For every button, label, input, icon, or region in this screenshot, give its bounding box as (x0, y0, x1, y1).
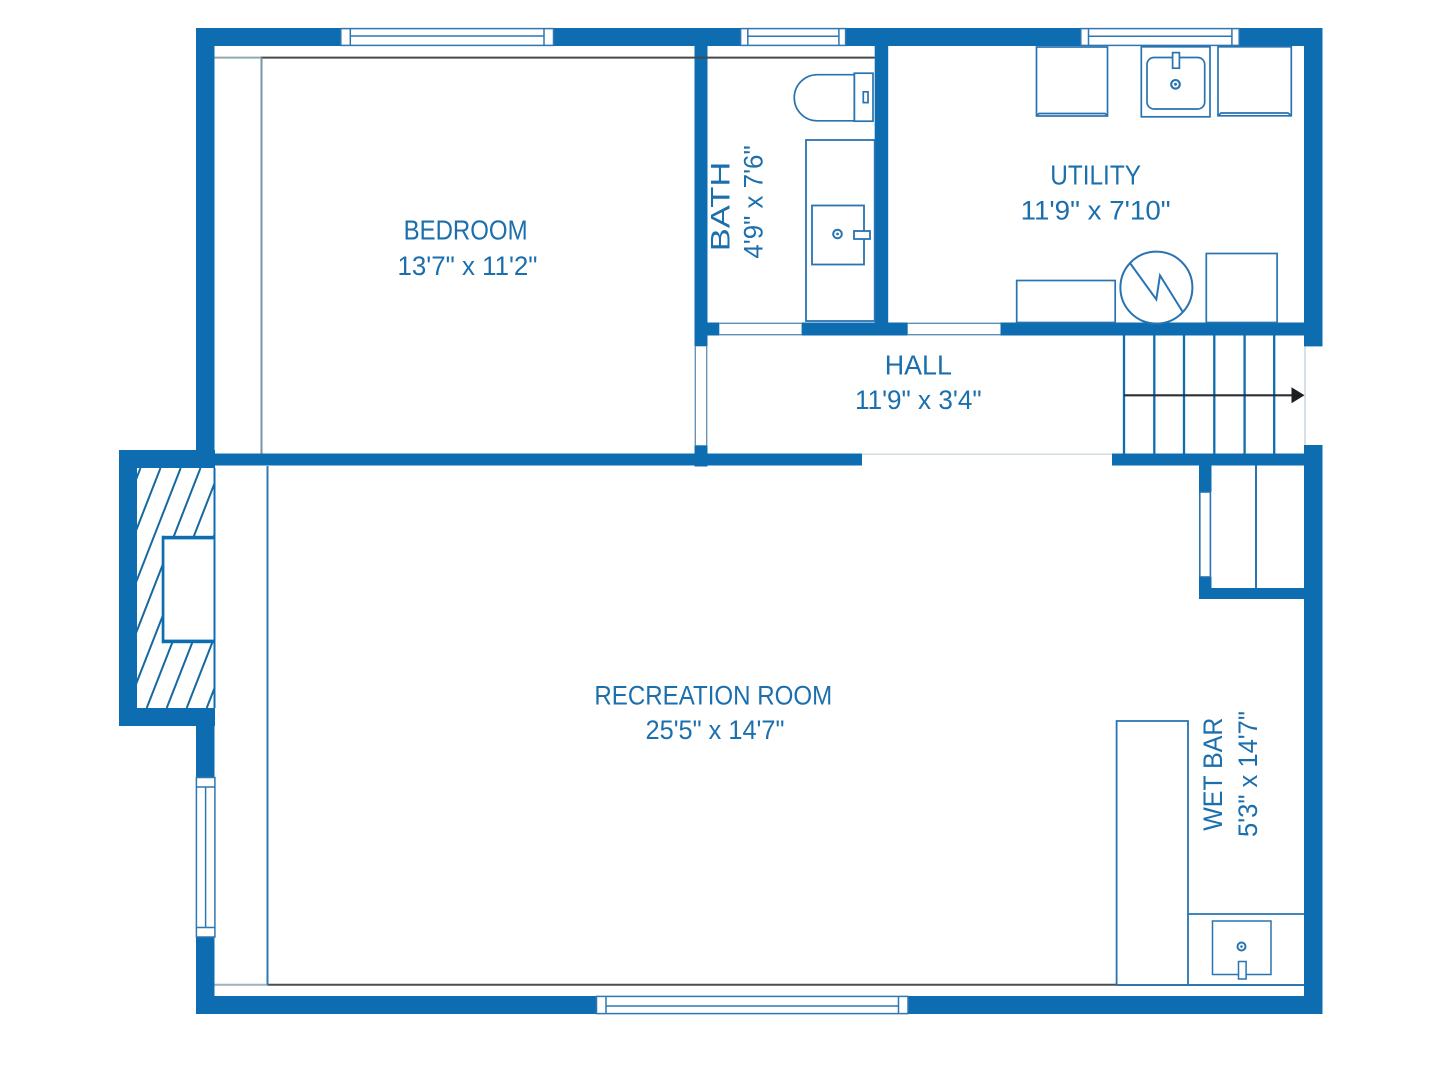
svg-text:BATH: BATH (706, 162, 736, 252)
svg-text:RECREATION ROOM: RECREATION ROOM (594, 680, 832, 710)
svg-text:25'5" x 14'7": 25'5" x 14'7" (646, 715, 785, 745)
svg-text:WET BAR: WET BAR (1198, 718, 1228, 831)
svg-text:13'7" x 11'2": 13'7" x 11'2" (398, 251, 538, 281)
svg-text:5'3" x 14'7": 5'3" x 14'7" (1233, 711, 1263, 837)
svg-text:BEDROOM: BEDROOM (404, 215, 528, 246)
svg-text:11'9" x 7'10": 11'9" x 7'10" (1021, 196, 1171, 226)
svg-text:4'9" x 7'6": 4'9" x 7'6" (739, 145, 769, 258)
svg-text:HALL: HALL (885, 350, 952, 381)
svg-text:11'9" x 3'4": 11'9" x 3'4" (855, 385, 982, 415)
svg-text:UTILITY: UTILITY (1050, 160, 1141, 191)
